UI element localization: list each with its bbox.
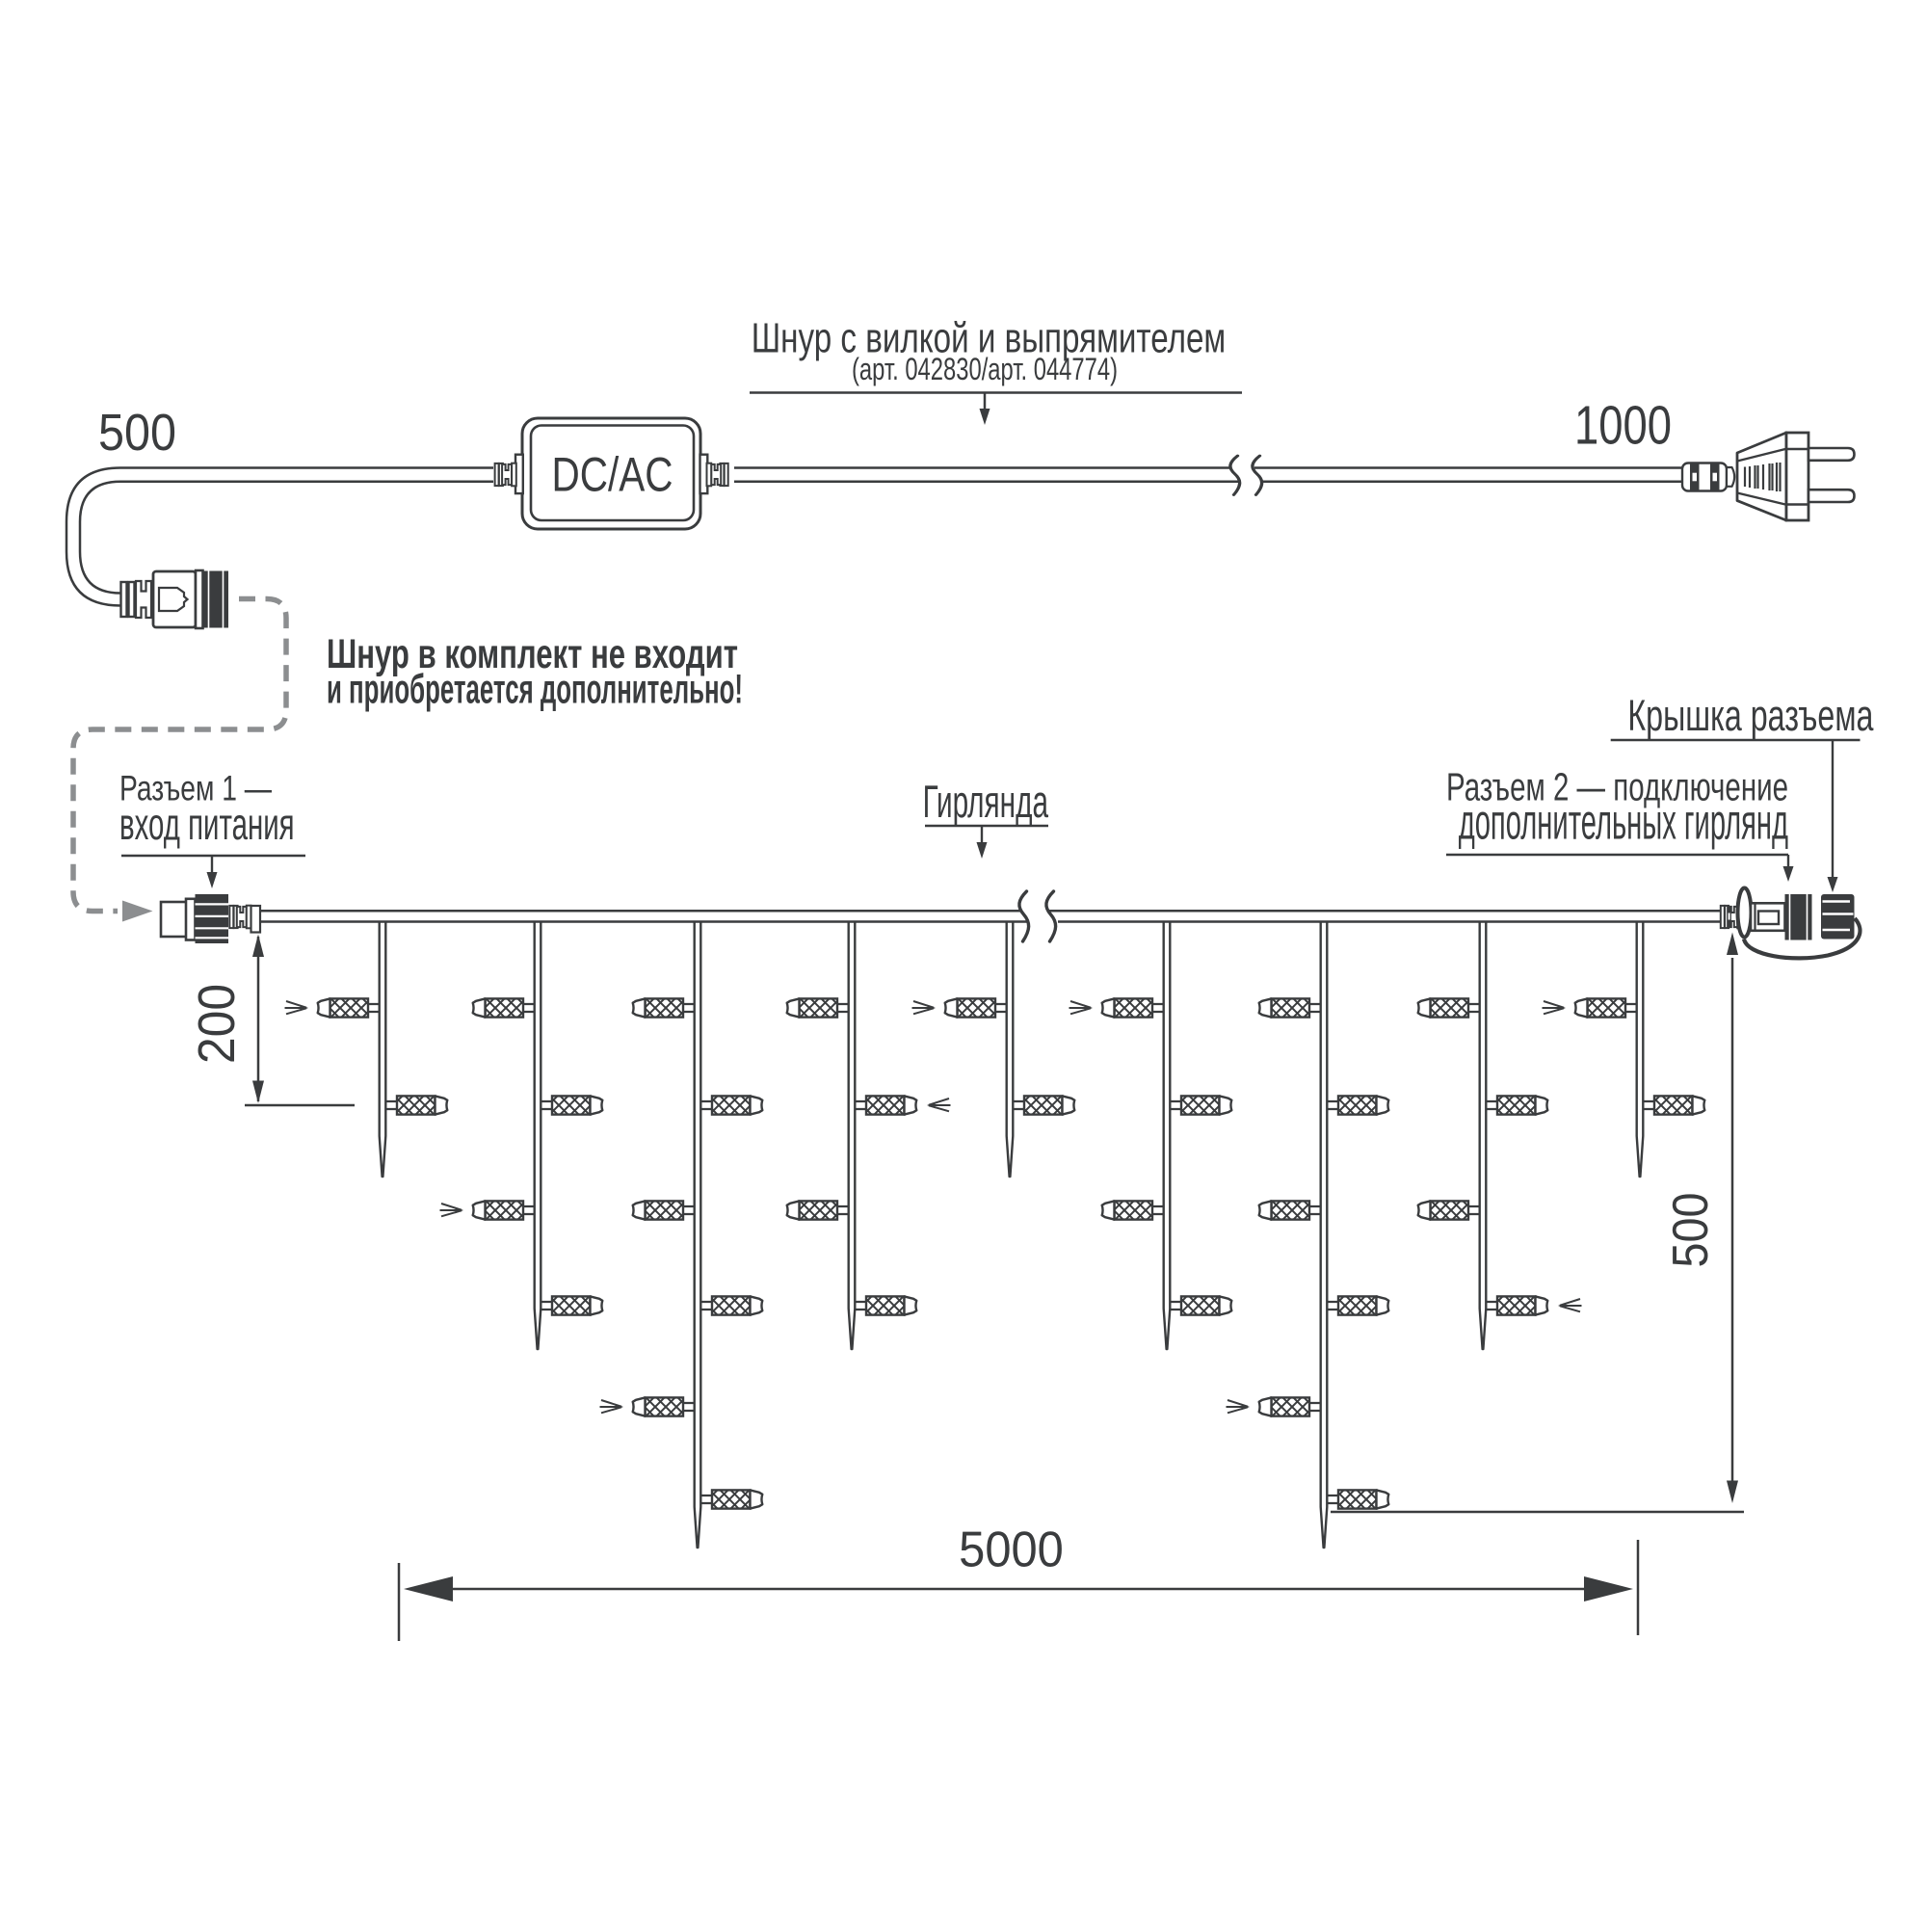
svg-text:1000: 1000 — [1574, 394, 1672, 456]
svg-text:вход питания: вход питания — [119, 799, 295, 849]
svg-text:Крышка разъема: Крышка разъема — [1627, 691, 1873, 740]
svg-text:500: 500 — [1662, 1193, 1718, 1268]
svg-text:500: 500 — [98, 404, 176, 462]
svg-text:и приобретается дополнительно!: и приобретается дополнительно! — [327, 667, 743, 713]
svg-text:DC/AC: DC/AC — [552, 448, 673, 502]
svg-text:(арт. 042830/арт. 044774): (арт. 042830/арт. 044774) — [852, 352, 1118, 386]
svg-text:5000: 5000 — [959, 1522, 1064, 1578]
svg-text:Гирлянда: Гирлянда — [923, 776, 1049, 827]
svg-text:дополнительных гирлянд: дополнительных гирлянд — [1459, 795, 1788, 851]
svg-text:200: 200 — [188, 984, 246, 1064]
